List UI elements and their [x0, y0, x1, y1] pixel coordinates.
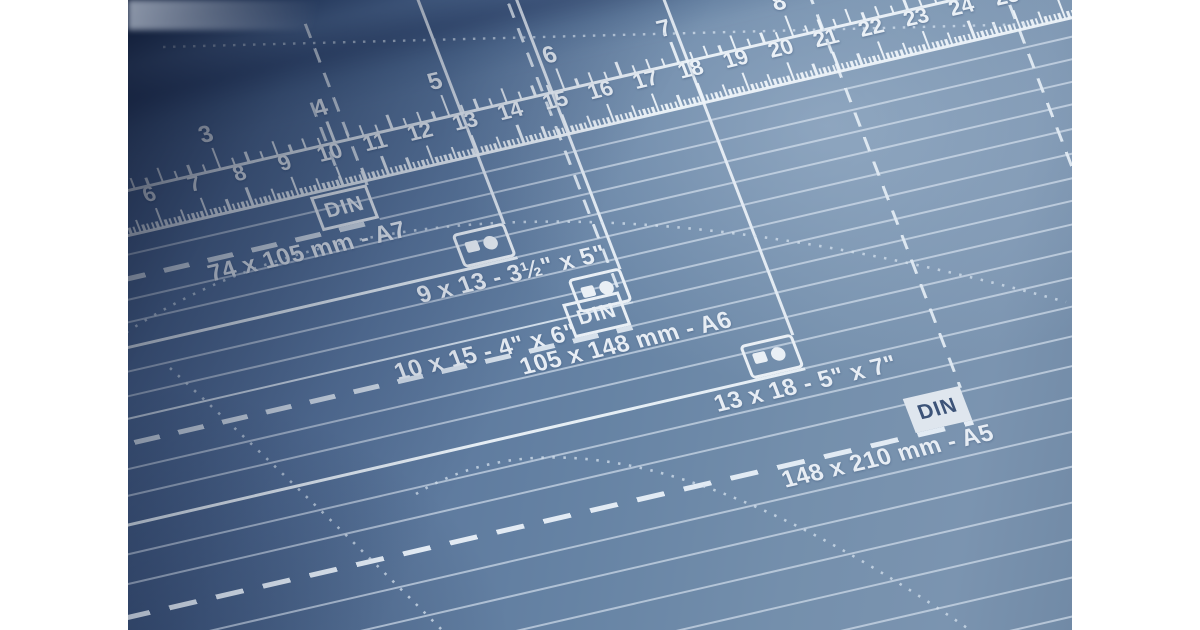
cut-line-a5-continuation — [973, 310, 1072, 421]
cm-tick — [561, 127, 566, 134]
inch-tick — [702, 45, 708, 56]
inch-tick — [615, 61, 623, 76]
inch-tick — [473, 98, 479, 109]
cm-tick — [732, 87, 737, 94]
inch-tick — [385, 114, 393, 129]
inch-tick — [803, 25, 808, 33]
cm-tick — [141, 224, 146, 231]
cm-tick — [917, 45, 922, 52]
cm-tick — [1071, 9, 1072, 16]
cm-tick — [240, 201, 245, 208]
cm-tick — [899, 49, 904, 56]
cm-tick — [209, 208, 214, 215]
photo-icon-circle — [481, 235, 500, 251]
inch-tick — [746, 39, 751, 47]
inch-tick — [301, 138, 307, 149]
inch-tick — [156, 167, 164, 182]
photo-icon-square — [464, 240, 481, 253]
cut-line-13x18-continuation — [805, 226, 1072, 368]
cm-tick — [619, 113, 624, 120]
cm-tick — [773, 78, 778, 85]
inch-tick — [345, 131, 350, 139]
inch-tick — [211, 147, 221, 168]
photo-icon-circle — [769, 346, 788, 362]
cm-tick — [998, 26, 1003, 33]
cm-tick — [195, 211, 200, 218]
inch-tick — [202, 164, 207, 172]
top-left-highlight-streak — [128, 0, 378, 30]
cm-tick — [831, 64, 836, 71]
inch-tick — [530, 85, 536, 96]
cm-tick — [985, 29, 990, 36]
inch-tick — [574, 78, 579, 86]
inch-tick — [129, 177, 135, 188]
inch-tick — [173, 171, 178, 179]
cm-tick — [353, 175, 358, 182]
cm-tick — [1043, 16, 1048, 23]
vertical-guide-25cm — [914, 0, 1072, 630]
cm-tick — [786, 75, 791, 82]
cm-tick — [886, 52, 891, 59]
cm-tick — [872, 55, 877, 62]
inch-tick — [660, 58, 665, 66]
inch-tick — [431, 111, 436, 119]
cm-tick — [308, 185, 313, 192]
inch-tick — [889, 5, 894, 13]
inch-tick — [244, 151, 250, 162]
trimmer-base-photo: 012345678910 012345678910111213141516171… — [128, 0, 1072, 630]
cm-tick — [1030, 19, 1035, 26]
photo-icon-square — [752, 351, 769, 364]
inch-tick — [288, 144, 293, 152]
cm-tick — [931, 42, 936, 49]
cm-tick — [507, 139, 512, 146]
inch-tick — [844, 8, 852, 23]
inch-tick — [259, 151, 264, 159]
mat-print-plane: 012345678910 012345678910111213141516171… — [128, 0, 1072, 630]
inch-tick — [488, 98, 493, 106]
cm-tick — [719, 91, 724, 98]
